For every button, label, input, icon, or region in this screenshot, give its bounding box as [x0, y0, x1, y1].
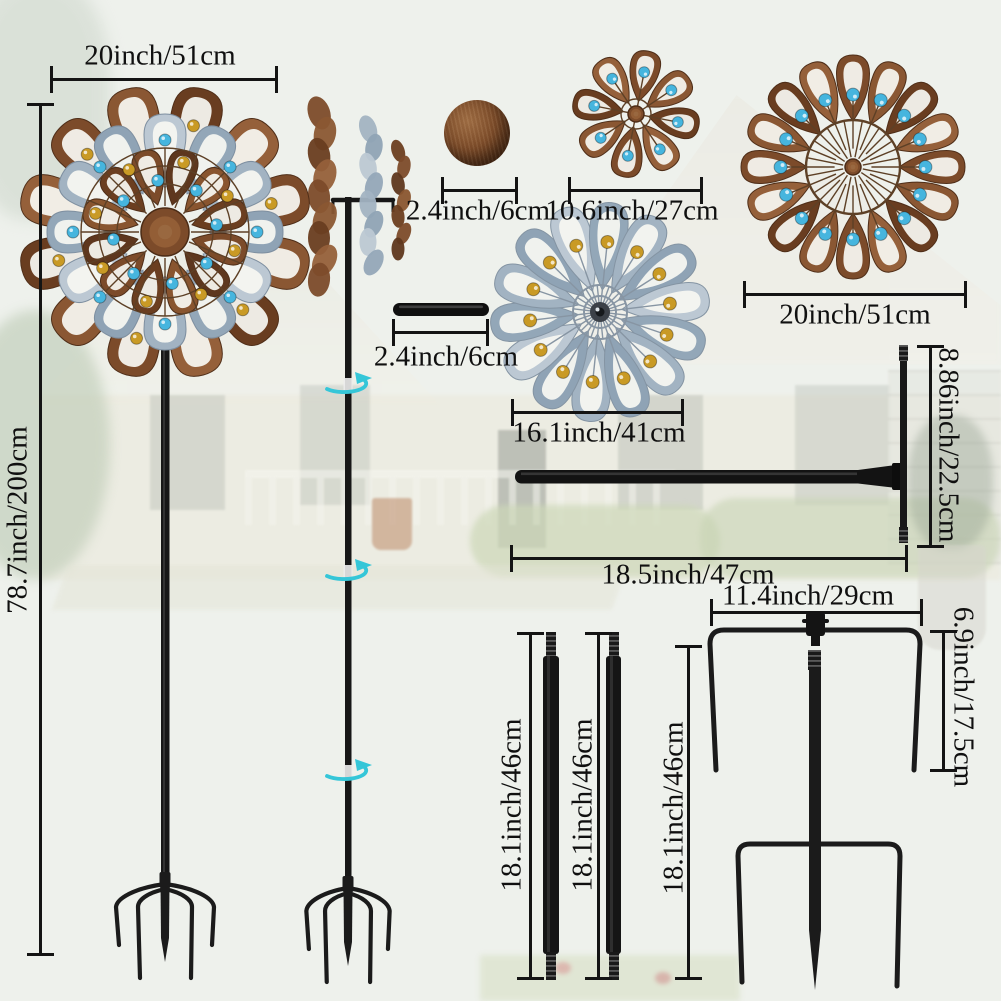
medium-spinner-wheel: [487, 199, 713, 425]
dimension-line-large-spinner: [743, 293, 967, 296]
side-spinner-blades: [303, 93, 414, 297]
dimension-label-ground-stake: 18.1inch/46cm: [660, 721, 689, 894]
dimension-line-ball-cap: [441, 189, 518, 192]
extension-pole-section-a: [543, 632, 559, 980]
dimension-label-crossbar-height: 8.86inch/22.5cm: [934, 348, 963, 543]
dimension-label-pole-b: 18.1inch/46cm: [569, 718, 598, 891]
dimension-line-total-height: [39, 103, 42, 956]
extension-pole-section-b: [606, 632, 621, 980]
dimension-label-connector: 2.4inch/6cm: [374, 343, 518, 372]
dimension-label-ball-cap: 2.4inch/6cm: [406, 197, 550, 226]
dimension-line-pole-a: [529, 632, 532, 980]
dimension-line-small-spinner: [568, 189, 703, 192]
dimension-label-total-height: 78.7inch/200cm: [4, 426, 33, 614]
front-spinner-head: [15, 82, 315, 382]
dimension-line-medium-spinner: [511, 411, 684, 414]
dimension-label-stake-top-width: 11.4inch/29cm: [722, 582, 894, 611]
product-dimension-diagram: 20inch/51cm 78.7inch/200cm 2.4inch/6cm 1…: [0, 0, 1001, 1001]
dimension-line-connector: [392, 331, 489, 334]
front-spinner-ground-base: [116, 872, 214, 978]
ground-stake-fork: [710, 612, 920, 990]
side-spinner-ground-base: [306, 876, 389, 982]
dimension-line-stake-prong-height: [942, 630, 945, 772]
dimension-label-stake-prong-height: 6.9inch/17.5cm: [949, 607, 978, 787]
large-spinner-wheel: [739, 53, 967, 281]
small-spinner-wheel: [570, 48, 702, 180]
side-spinner-pole: [333, 197, 393, 886]
dimension-label-head-width: 20inch/51cm: [84, 42, 235, 71]
dimension-label-medium-spinner: 16.1inch/41cm: [512, 419, 685, 448]
finial-ball-cap: [444, 100, 510, 166]
dimension-line-head-width: [50, 78, 278, 81]
connector-tube: [393, 303, 489, 316]
dimension-label-pole-a: 18.1inch/46cm: [498, 718, 527, 891]
dimension-label-small-spinner: 10.6inch/27cm: [545, 197, 718, 226]
dimension-label-large-spinner: 20inch/51cm: [779, 301, 930, 330]
